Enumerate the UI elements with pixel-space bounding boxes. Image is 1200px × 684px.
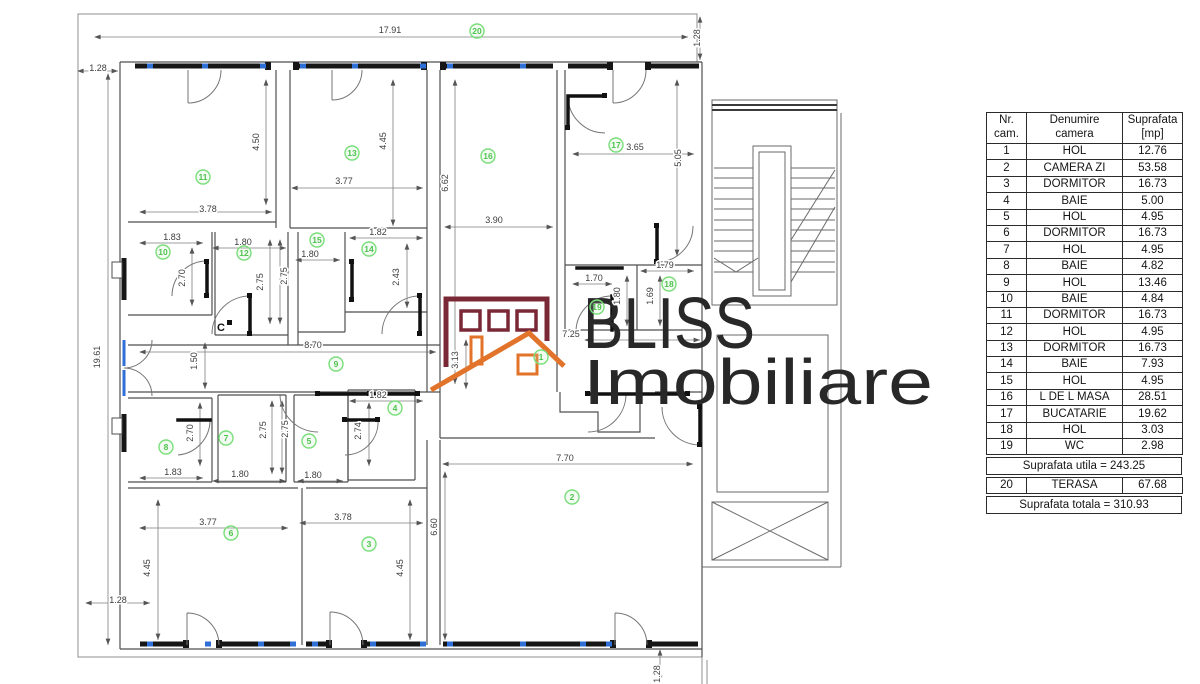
screenshot-root: BLISS Imobiliare 17.911.281.2819.611.281… xyxy=(0,0,1200,684)
dimension-label: 3.77 xyxy=(335,176,353,186)
table-row: 8BAIE4.82 xyxy=(987,258,1183,274)
table-row: 10BAIE4.84 xyxy=(987,291,1183,307)
dimension-label: 4.50 xyxy=(251,133,261,151)
area-table: Nr.cam. Denumirecamera Suprafata[mp] 1HO… xyxy=(986,112,1184,516)
room-number-label: 16 xyxy=(483,151,493,161)
area-table-body: 1HOL12.762CAMERA ZI53.583DORMITOR16.734B… xyxy=(987,144,1183,455)
dimension-label: 17.91 xyxy=(379,25,402,35)
dimension-label: 4.45 xyxy=(142,559,152,577)
staircase xyxy=(712,100,837,305)
table-row: 3DORMITOR16.73 xyxy=(987,176,1183,192)
subtotal-label: Suprafata utila = 243.25 xyxy=(987,458,1182,474)
table-row: 15HOL4.95 xyxy=(987,373,1183,389)
dimension-label: 3.65 xyxy=(626,142,644,152)
table-row: 18HOL3.03 xyxy=(987,422,1183,438)
dimension-label: 1.28 xyxy=(109,595,127,605)
room-number-label: 20 xyxy=(472,26,482,36)
table-row: 16L DE L MASA28.51 xyxy=(987,389,1183,405)
table-row: 12HOL4.95 xyxy=(987,324,1183,340)
table-row: 4BAIE5.00 xyxy=(987,193,1183,209)
logo-house-icon xyxy=(431,299,564,390)
room-number-label: 1 xyxy=(539,352,544,362)
dimension-label: 1.83 xyxy=(164,467,182,477)
dimension-label: 3.90 xyxy=(485,215,503,225)
dimension-label: 2.75 xyxy=(258,421,268,439)
room-number-label: 15 xyxy=(312,235,322,245)
room-number-label: 4 xyxy=(393,403,398,413)
terasa-row: 20 TERASA 67.68 xyxy=(987,477,1183,493)
dimension-label: 1.79 xyxy=(656,260,674,270)
dimension-label: 2.70 xyxy=(177,269,187,287)
table-row: 9HOL13.46 xyxy=(987,275,1183,291)
dimension-label: 3.78 xyxy=(334,512,352,522)
table-row: 14BAIE7.93 xyxy=(987,357,1183,373)
dimension-label: 1.70 xyxy=(585,273,603,283)
table-header-row: Nr.cam. Denumirecamera Suprafata[mp] xyxy=(987,113,1183,144)
dimension-label: 2.75 xyxy=(255,273,265,291)
logo-text-line2: Imobiliare xyxy=(583,346,933,418)
dimension-label: 3.13 xyxy=(450,351,460,369)
table-row: 11DORMITOR16.73 xyxy=(987,307,1183,323)
room-number-label: 19 xyxy=(592,302,602,312)
table-row: 1HOL12.76 xyxy=(987,144,1183,160)
subtotal-table: Suprafata utila = 243.25 xyxy=(986,457,1182,474)
table-row: 6DORMITOR16.73 xyxy=(987,225,1183,241)
plan-annotations: C xyxy=(217,320,232,334)
dimension-label: 2.75 xyxy=(280,420,290,438)
room-number-label: 3 xyxy=(367,539,372,549)
total-table: Suprafata totala = 310.93 xyxy=(986,496,1182,513)
room-number-label: 11 xyxy=(199,172,208,182)
table-row: 13DORMITOR16.73 xyxy=(987,340,1183,356)
room-number-label: 18 xyxy=(664,279,674,289)
dimension-label: 6.60 xyxy=(429,518,439,536)
room-number-label: 13 xyxy=(347,148,357,158)
room-number-label: 9 xyxy=(334,359,339,369)
subtotal-row: Suprafata utila = 243.25 xyxy=(987,458,1182,474)
col-header-denumire: Denumirecamera xyxy=(1027,113,1123,144)
dimension-label: 1.82 xyxy=(369,390,387,400)
room-number-label: 10 xyxy=(158,247,168,257)
dimension-label: 5.05 xyxy=(673,149,683,167)
dimension-label: 2.75 xyxy=(279,267,289,285)
dimension-label: 1.80 xyxy=(612,287,622,305)
dimension-label: 1.80 xyxy=(304,470,322,480)
room-number-label: 5 xyxy=(307,436,312,446)
dimension-label: 1.50 xyxy=(189,352,199,370)
room-number-label: 2 xyxy=(570,492,575,502)
table-row: 5HOL4.95 xyxy=(987,209,1183,225)
room-number-label: 17 xyxy=(611,140,621,150)
dimension-label: 8.70 xyxy=(304,340,322,350)
dimension-label: 7.25 xyxy=(562,329,580,339)
room-number-label: 7 xyxy=(224,433,229,443)
total-row: Suprafata totala = 310.93 xyxy=(987,497,1182,513)
logo: BLISS Imobiliare xyxy=(431,284,933,418)
dimension-label: 2.70 xyxy=(185,424,195,442)
dimension-label: 1.28 xyxy=(692,29,702,47)
dimension-label: 1.28 xyxy=(652,665,662,683)
table-row: 17BUCATARIE19.62 xyxy=(987,406,1183,422)
room-number-label: 8 xyxy=(164,442,169,452)
dimension-label: 2.43 xyxy=(391,268,401,286)
dimension-label: 1.83 xyxy=(163,232,181,242)
dimension-label: 4.45 xyxy=(395,559,405,577)
elevator-shaft xyxy=(712,502,828,560)
dimension-label: 3.78 xyxy=(199,204,217,214)
plan-annotation-label: C xyxy=(217,322,225,334)
col-header-nr: Nr.cam. xyxy=(987,113,1027,144)
col-header-suprafata: Suprafata[mp] xyxy=(1123,113,1183,144)
dimension-label: 7.70 xyxy=(556,453,574,463)
dimension-label: 1.80 xyxy=(231,469,249,479)
dimension-label: 4.45 xyxy=(378,132,388,150)
terasa-table: 20 TERASA 67.68 xyxy=(986,477,1183,494)
dimension-label: 1.28 xyxy=(89,63,107,73)
dimension-label: 3.77 xyxy=(199,517,217,527)
dimension-label: 1.82 xyxy=(369,227,387,237)
dimension-label: 6.62 xyxy=(440,174,450,192)
dimension-label: 1.69 xyxy=(645,287,655,305)
room-number-label: 14 xyxy=(364,244,374,254)
dimension-label: 1.80 xyxy=(301,249,319,259)
table-row: 7HOL4.95 xyxy=(987,242,1183,258)
room-number-label: 6 xyxy=(229,528,234,538)
table-row: 2CAMERA ZI53.58 xyxy=(987,160,1183,176)
table-row: 19WC2.98 xyxy=(987,439,1183,455)
dimension-label: 2.74 xyxy=(353,422,363,440)
room-area-table: Nr.cam. Denumirecamera Suprafata[mp] 1HO… xyxy=(986,112,1183,455)
total-label: Suprafata totala = 310.93 xyxy=(987,497,1182,513)
room-number-label: 12 xyxy=(239,248,249,258)
dimension-label: 19.61 xyxy=(92,346,102,369)
